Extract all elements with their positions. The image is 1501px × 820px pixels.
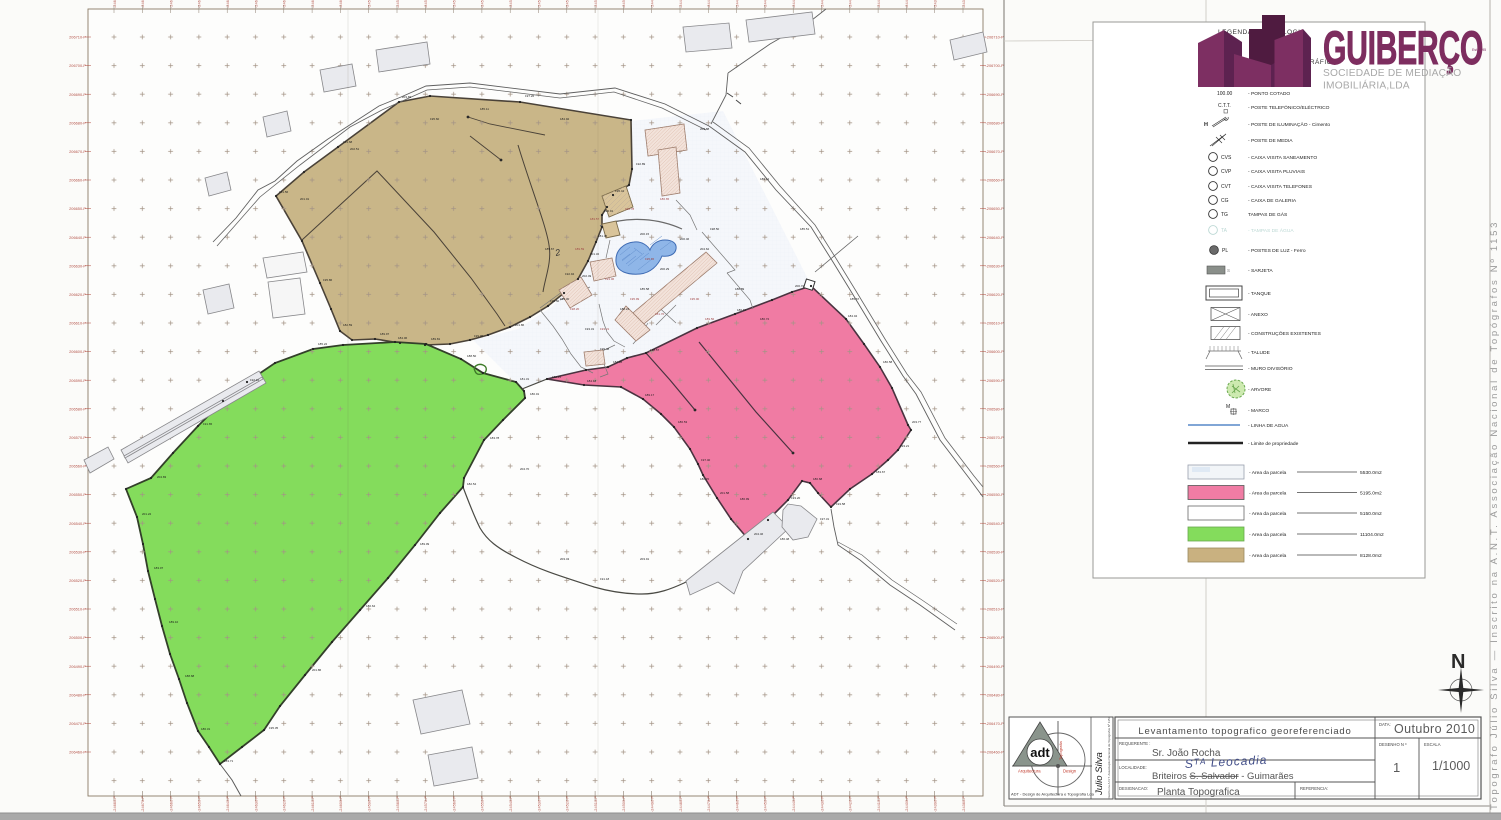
svg-text:-24520-P: -24520-P <box>565 0 570 8</box>
svg-text:- Area da parcela: - Area da parcela <box>1249 553 1287 559</box>
svg-text:-24660-P: -24660-P <box>168 0 173 8</box>
svg-text:Planta Topografica: Planta Topografica <box>1157 787 1240 798</box>
svg-text:LOCALIDADE:: LOCALIDADE: <box>1119 765 1147 770</box>
svg-text:-24400-P: -24400-P <box>904 0 909 8</box>
svg-text:192.94: 192.94 <box>565 272 575 276</box>
svg-text:-24460-P: -24460-P <box>734 0 739 8</box>
svg-text:185.22: 185.22 <box>318 342 328 346</box>
svg-text:186.65: 186.65 <box>660 197 670 201</box>
svg-text:206540-P: 206540-P <box>69 521 86 526</box>
svg-text:204.62: 204.62 <box>700 247 710 251</box>
svg-text:TAMPAS DE GÁS: TAMPAS DE GÁS <box>1248 211 1288 218</box>
svg-text:186.53: 186.53 <box>678 420 688 424</box>
svg-text:193.21: 193.21 <box>900 444 910 448</box>
svg-text:-24580-P: -24580-P <box>395 796 400 812</box>
svg-text:206500-P: 206500-P <box>69 635 86 640</box>
svg-text:-206550-P: -206550-P <box>986 492 1005 497</box>
svg-text:- TALUDE: - TALUDE <box>1248 350 1271 356</box>
svg-text:204.46: 204.46 <box>754 532 764 536</box>
svg-text:-206510-P: -206510-P <box>986 607 1005 612</box>
svg-text:186.62: 186.62 <box>737 308 747 312</box>
svg-text:CVS: CVS <box>1221 155 1232 161</box>
svg-text:- Area da parcela: - Area da parcela <box>1249 491 1287 497</box>
svg-text:186.31: 186.31 <box>201 727 211 731</box>
svg-text:189.97: 189.97 <box>380 332 390 336</box>
svg-text:181.70: 181.70 <box>655 312 665 316</box>
svg-text:5195.0m2: 5195.0m2 <box>1360 491 1382 497</box>
svg-text:197.40: 197.40 <box>701 458 711 462</box>
svg-text:-24500-P: -24500-P <box>621 0 626 8</box>
svg-text:198.20: 198.20 <box>570 307 580 311</box>
svg-text:-206620-P: -206620-P <box>986 292 1005 297</box>
svg-text:-24410-P: -24410-P <box>876 796 881 812</box>
svg-text:REFERENCIA:: REFERENCIA: <box>1300 786 1328 791</box>
svg-text:189.12: 189.12 <box>760 177 770 181</box>
svg-text:-206560-P: -206560-P <box>986 464 1005 469</box>
svg-text:193.58: 193.58 <box>836 502 846 506</box>
svg-text:-24380-P: -24380-P <box>961 796 966 812</box>
svg-text:182.55: 182.55 <box>613 360 623 364</box>
svg-text:188.24: 188.24 <box>620 307 630 311</box>
svg-text:-24630-P: -24630-P <box>253 0 258 8</box>
svg-text:-24500-P: -24500-P <box>621 796 626 812</box>
svg-text:193.20: 193.20 <box>791 496 801 500</box>
svg-text:181.56: 181.56 <box>279 190 289 194</box>
svg-text:ESCALA: ESCALA <box>1424 742 1441 747</box>
svg-text:100.00: 100.00 <box>1217 91 1233 97</box>
svg-text:206550-P: 206550-P <box>69 492 86 497</box>
svg-text:200.46: 200.46 <box>680 237 690 241</box>
svg-text:-24550-P: -24550-P <box>480 0 485 8</box>
svg-text:206460-P: 206460-P <box>69 750 86 755</box>
svg-text:-24610-P: -24610-P <box>310 796 315 812</box>
svg-text:181.35: 181.35 <box>598 234 608 238</box>
svg-text:183.07: 183.07 <box>154 566 164 570</box>
svg-text:C.T.T.: C.T.T. <box>1218 103 1231 109</box>
svg-text:195.86: 195.86 <box>323 278 333 282</box>
svg-text:-24670-P: -24670-P <box>140 0 145 8</box>
svg-text:206480-P: 206480-P <box>69 692 86 697</box>
svg-text:182.54: 182.54 <box>467 482 477 486</box>
svg-text:200.29: 200.29 <box>660 267 670 271</box>
svg-text:-24530-P: -24530-P <box>536 0 541 8</box>
svg-text:-24680-P: -24680-P <box>112 796 117 812</box>
svg-text:-24570-P: -24570-P <box>423 0 428 8</box>
svg-text:195.78: 195.78 <box>625 207 635 211</box>
svg-text:189.81: 189.81 <box>431 337 441 341</box>
svg-text:-24670-P: -24670-P <box>140 796 145 812</box>
svg-text:DESIGNACAO:: DESIGNACAO: <box>1119 786 1148 791</box>
svg-text:- POSTE DE MEDIA: - POSTE DE MEDIA <box>1248 138 1293 144</box>
svg-text:188.89: 188.89 <box>735 287 745 291</box>
svg-text:-206640-P: -206640-P <box>986 235 1005 240</box>
svg-text:193.21: 193.21 <box>600 327 610 331</box>
svg-text:1: 1 <box>1393 760 1400 775</box>
svg-text:- CONSTRUÇÕES EXISTENTES: - CONSTRUÇÕES EXISTENTES <box>1248 330 1322 337</box>
svg-text:-24520-P: -24520-P <box>565 796 570 812</box>
svg-text:183.67: 183.67 <box>876 470 886 474</box>
svg-text:206670-P: 206670-P <box>69 149 86 154</box>
svg-text:- Area da parcela: - Area da parcela <box>1249 532 1287 538</box>
svg-text:Topografia: Topografia <box>1058 741 1063 760</box>
svg-text:201.22: 201.22 <box>142 512 152 516</box>
svg-text:- Area da parcela: - Area da parcela <box>1249 470 1287 476</box>
svg-text:-24580-P: -24580-P <box>395 0 400 8</box>
svg-text:- LINHA DE AGUA: - LINHA DE AGUA <box>1248 423 1289 429</box>
svg-text:-24560-P: -24560-P <box>451 796 456 812</box>
svg-text:206560-P: 206560-P <box>69 464 86 469</box>
svg-text:-206480-P: -206480-P <box>986 692 1005 697</box>
svg-text:- PONTO COTADO: - PONTO COTADO <box>1248 91 1290 97</box>
svg-text:188.50: 188.50 <box>467 354 477 358</box>
svg-text:M: M <box>1226 404 1230 410</box>
svg-text:-24400-P: -24400-P <box>904 796 909 812</box>
svg-text:202.51: 202.51 <box>350 147 360 151</box>
svg-text:-24440-P: -24440-P <box>791 0 796 8</box>
svg-text:- ARVORE: - ARVORE <box>1248 387 1272 393</box>
svg-text:5150.0m2: 5150.0m2 <box>1360 511 1382 517</box>
svg-text:189.56: 189.56 <box>705 317 715 321</box>
svg-text:-24470-P: -24470-P <box>706 796 711 812</box>
svg-text:206570-P: 206570-P <box>69 435 86 440</box>
svg-text:- MURO DIVISÓRIO: - MURO DIVISÓRIO <box>1248 365 1293 372</box>
svg-text:206470-P: 206470-P <box>69 721 86 726</box>
svg-text:206680-P: 206680-P <box>69 120 86 125</box>
svg-text:195.60: 195.60 <box>430 117 440 121</box>
svg-text:206530-P: 206530-P <box>69 549 86 554</box>
svg-text:189.09: 189.09 <box>420 542 430 546</box>
svg-text:- Limite de propriedade: - Limite de propriedade <box>1248 441 1299 447</box>
svg-text:199.30: 199.30 <box>560 297 570 301</box>
svg-text:206690-P: 206690-P <box>69 92 86 97</box>
svg-text:203.91: 203.91 <box>640 557 650 561</box>
svg-text:-24650-P: -24650-P <box>197 796 202 812</box>
svg-text:-24390-P: -24390-P <box>933 0 938 8</box>
svg-text:-206530-P: -206530-P <box>986 549 1005 554</box>
svg-text:189.17: 189.17 <box>645 393 655 397</box>
svg-text:197.31: 197.31 <box>820 517 830 521</box>
svg-text:-24420-P: -24420-P <box>848 796 853 812</box>
svg-text:180.01: 180.01 <box>530 392 540 396</box>
svg-text:TG: TG <box>1221 212 1228 218</box>
svg-text:191.18: 191.18 <box>600 577 610 581</box>
svg-text:- ANEXO: - ANEXO <box>1248 312 1268 318</box>
svg-text:-206710-P: -206710-P <box>986 35 1005 40</box>
svg-text:-24620-P: -24620-P <box>282 0 287 8</box>
svg-text:206520-P: 206520-P <box>69 578 86 583</box>
svg-text:-24540-P: -24540-P <box>508 796 513 812</box>
svg-text:-24510-P: -24510-P <box>593 796 598 812</box>
svg-text:S: S <box>1227 268 1230 273</box>
svg-text:199.95: 199.95 <box>474 334 484 338</box>
svg-text:-206570-P: -206570-P <box>986 435 1005 440</box>
svg-text:191.65: 191.65 <box>203 422 213 426</box>
svg-text:Arquitectura: Arquitectura <box>1018 769 1041 774</box>
svg-text:-206460-P: -206460-P <box>986 750 1005 755</box>
svg-text:180.64: 180.64 <box>366 604 376 608</box>
svg-text:193.06: 193.06 <box>605 277 615 281</box>
svg-text:CG: CG <box>1221 198 1229 204</box>
svg-text:195.99: 195.99 <box>630 297 640 301</box>
svg-text:180.72: 180.72 <box>760 317 770 321</box>
svg-text:180.70: 180.70 <box>700 477 710 481</box>
svg-text:203.43: 203.43 <box>560 557 570 561</box>
svg-text:206490-P: 206490-P <box>69 664 86 669</box>
svg-text:186.99: 186.99 <box>740 497 750 501</box>
svg-text:-206500-P: -206500-P <box>986 635 1005 640</box>
svg-text:184.04: 184.04 <box>848 314 858 318</box>
svg-text:-24550-P: -24550-P <box>480 796 485 812</box>
svg-text:-24410-P: -24410-P <box>876 0 881 8</box>
svg-text:-206650-P: -206650-P <box>986 206 1005 211</box>
svg-text:- SARJETA: - SARJETA <box>1248 268 1273 274</box>
svg-text:8128.0m2: 8128.0m2 <box>1360 553 1382 559</box>
svg-text:-24650-P: -24650-P <box>197 0 202 8</box>
svg-text:-24480-P: -24480-P <box>678 796 683 812</box>
svg-text:193.31: 193.31 <box>585 327 595 331</box>
svg-text:199.50: 199.50 <box>550 299 560 303</box>
svg-text:206580-P: 206580-P <box>69 406 86 411</box>
svg-text:-206630-P: -206630-P <box>986 263 1005 268</box>
svg-text:-24640-P: -24640-P <box>225 0 230 8</box>
svg-text:192.89: 192.89 <box>636 162 646 166</box>
svg-text:- POSTES DE LUZ - Ferro: - POSTES DE LUZ - Ferro <box>1248 248 1306 254</box>
svg-text:CVT: CVT <box>1221 184 1231 190</box>
svg-text:185.51: 185.51 <box>800 227 810 231</box>
svg-text:-24430-P: -24430-P <box>819 796 824 812</box>
svg-text:202.49: 202.49 <box>582 274 592 278</box>
svg-text:206510-P: 206510-P <box>69 607 86 612</box>
svg-text:-24590-P: -24590-P <box>367 0 372 8</box>
svg-text:203.83: 203.83 <box>402 95 412 99</box>
svg-text:-206670-P: -206670-P <box>986 149 1005 154</box>
svg-text:200.72: 200.72 <box>795 284 805 288</box>
svg-text:195.44: 195.44 <box>615 189 625 193</box>
svg-text:196.91: 196.91 <box>604 209 614 213</box>
svg-text:201.58: 201.58 <box>720 491 730 495</box>
svg-text:189.59: 189.59 <box>575 247 585 251</box>
svg-text:PL: PL <box>1222 248 1228 254</box>
svg-text:204.83: 204.83 <box>157 475 167 479</box>
svg-text:- TAMPAS DE ÁGUA: - TAMPAS DE ÁGUA <box>1248 227 1294 234</box>
svg-text:- Area da parcela: - Area da parcela <box>1249 511 1287 517</box>
svg-text:-24450-P: -24450-P <box>763 0 768 8</box>
svg-text:206700-P: 206700-P <box>69 63 86 68</box>
svg-text:-206580-P: -206580-P <box>986 406 1005 411</box>
svg-text:195.35: 195.35 <box>269 726 279 730</box>
svg-text:Inscrito na A.N.T. Associação: Inscrito na A.N.T. Associação Nacional d… <box>1107 716 1111 799</box>
svg-text:SOCIEDADE DE MEDIAÇÃO: SOCIEDADE DE MEDIAÇÃO <box>1323 66 1461 79</box>
svg-text:CVP: CVP <box>1221 169 1232 175</box>
svg-text:200.15: 200.15 <box>640 232 650 236</box>
svg-text:206640-P: 206640-P <box>69 235 86 240</box>
svg-text:203.77: 203.77 <box>912 420 922 424</box>
svg-text:N: N <box>1451 651 1465 673</box>
svg-text:Design: Design <box>1063 769 1077 774</box>
svg-text:184.92: 184.92 <box>560 117 570 121</box>
svg-text:-24460-P: -24460-P <box>734 796 739 812</box>
svg-text:-206680-P: -206680-P <box>986 120 1005 125</box>
svg-text:183.71: 183.71 <box>224 759 234 763</box>
svg-text:DESENHO N º: DESENHO N º <box>1379 742 1407 747</box>
svg-text:DATA:: DATA: <box>1379 722 1391 727</box>
svg-text:206600-P: 206600-P <box>69 349 86 354</box>
svg-text:-24510-P: -24510-P <box>593 0 598 8</box>
svg-text:180.58: 180.58 <box>883 360 893 364</box>
svg-text:188.68: 188.68 <box>185 674 195 678</box>
svg-text:-206690-P: -206690-P <box>986 92 1005 97</box>
svg-text:TA: TA <box>1221 228 1228 234</box>
svg-text:Briteiros S. Salvador - Gu: Briteiros S. Salvador - Guimarães <box>1152 771 1294 782</box>
svg-text:Topografo Júlio Silva — In: Topografo Júlio Silva — Inscrito na A.N.… <box>1489 220 1500 810</box>
svg-text:-206470-P: -206470-P <box>986 721 1005 726</box>
svg-text:-206490-P: -206490-P <box>986 664 1005 669</box>
svg-text:184.18: 184.18 <box>587 379 597 383</box>
svg-text:- CAIXA VISITA TELEFONES: - CAIXA VISITA TELEFONES <box>1248 184 1313 190</box>
svg-text:185.67: 185.67 <box>850 297 860 301</box>
svg-text:199.48: 199.48 <box>600 347 610 351</box>
svg-text:203.88: 203.88 <box>700 127 710 131</box>
svg-text:-24590-P: -24590-P <box>367 796 372 812</box>
svg-text:192.10: 192.10 <box>250 378 260 382</box>
svg-text:195.65: 195.65 <box>645 257 655 261</box>
svg-text:-24490-P: -24490-P <box>650 0 655 8</box>
svg-text:182.15: 182.15 <box>552 375 562 379</box>
svg-text:-24480-P: -24480-P <box>678 0 683 8</box>
svg-text:-206610-P: -206610-P <box>986 321 1005 326</box>
svg-text:- TANQUE: - TANQUE <box>1248 291 1272 297</box>
svg-text:adt: adt <box>1030 745 1050 760</box>
svg-text:GUIBERÇO: GUIBERÇO <box>1323 22 1483 74</box>
svg-text:- CAIXA DE GALERIA: - CAIXA DE GALERIA <box>1248 198 1297 204</box>
svg-text:-206520-P: -206520-P <box>986 578 1005 583</box>
svg-text:-24450-P: -24450-P <box>763 796 768 812</box>
svg-text:-206700-P: -206700-P <box>986 63 1005 68</box>
svg-text:197.26: 197.26 <box>525 94 535 98</box>
svg-text:-24440-P: -24440-P <box>791 796 796 812</box>
svg-text:201.86: 201.86 <box>515 323 525 327</box>
svg-text:188.57: 188.57 <box>650 348 660 352</box>
svg-text:-24570-P: -24570-P <box>423 796 428 812</box>
svg-text:-24470-P: -24470-P <box>706 0 711 8</box>
svg-text:- POSTE TELEFÓNICO/ELÉCTRICO: - POSTE TELEFÓNICO/ELÉCTRICO <box>1248 104 1330 111</box>
svg-text:-206600-P: -206600-P <box>986 349 1005 354</box>
svg-text:1/1000: 1/1000 <box>1432 759 1470 773</box>
svg-text:IMOBILIÁRIA,LDA: IMOBILIÁRIA,LDA <box>1323 79 1410 92</box>
svg-text:-24380-P: -24380-P <box>961 0 966 8</box>
svg-text:201.86: 201.86 <box>312 668 322 672</box>
svg-text:H: H <box>1204 122 1208 128</box>
svg-text:181.31: 181.31 <box>520 377 530 381</box>
svg-text:-24420-P: -24420-P <box>848 0 853 8</box>
svg-text:180.68: 180.68 <box>813 477 823 481</box>
svg-text:-24660-P: -24660-P <box>168 796 173 812</box>
svg-text:Julio Silva: Julio Silva <box>1094 752 1105 796</box>
svg-text:- POSTE DE ILUMINAÇÃO - Ciment: - POSTE DE ILUMINAÇÃO - Cimento <box>1248 121 1330 128</box>
svg-text:189.10: 189.10 <box>169 620 179 624</box>
svg-text:11104.0m2: 11104.0m2 <box>1360 532 1384 538</box>
svg-text:- CAIXA VISITA PLUVIAIS: - CAIXA VISITA PLUVIAIS <box>1248 169 1306 175</box>
svg-text:-24620-P: -24620-P <box>282 796 287 812</box>
svg-text:-24600-P: -24600-P <box>338 796 343 812</box>
svg-text:206710-P: 206710-P <box>69 35 86 40</box>
svg-text:198.50: 198.50 <box>710 227 720 231</box>
svg-text:206630-P: 206630-P <box>69 263 86 268</box>
svg-text:-206590-P: -206590-P <box>986 378 1005 383</box>
svg-text:206590-P: 206590-P <box>69 378 86 383</box>
svg-text:-24640-P: -24640-P <box>225 796 230 812</box>
svg-text:-24390-P: -24390-P <box>933 796 938 812</box>
svg-text:201.01: 201.01 <box>300 197 310 201</box>
svg-text:206610-P: 206610-P <box>69 321 86 326</box>
svg-text:-24610-P: -24610-P <box>310 0 315 8</box>
svg-text:186.48: 186.48 <box>780 537 790 541</box>
svg-text:-24630-P: -24630-P <box>253 796 258 812</box>
svg-text:184.06: 184.06 <box>398 336 408 340</box>
svg-text:185.67: 185.67 <box>545 247 555 251</box>
svg-text:- MARCO: - MARCO <box>1248 408 1269 414</box>
svg-text:-206660-P: -206660-P <box>986 178 1005 183</box>
svg-text:185.11: 185.11 <box>480 107 489 111</box>
svg-text:206620-P: 206620-P <box>69 292 86 297</box>
svg-text:- CAIXA VISITA SANEAMENTO: - CAIXA VISITA SANEAMENTO <box>1248 155 1317 161</box>
svg-text:Outubro 2010: Outubro 2010 <box>1394 722 1475 736</box>
svg-text:Est 1995: Est 1995 <box>1472 48 1486 52</box>
svg-text:206650-P: 206650-P <box>69 206 86 211</box>
svg-text:-24540-P: -24540-P <box>508 0 513 8</box>
svg-text:REQUERENTE :: REQUERENTE : <box>1119 741 1150 746</box>
svg-text:ADT - Design de Arquitectu: ADT - Design de Arquitectura e Topografi… <box>1011 792 1095 797</box>
svg-text:-24560-P: -24560-P <box>451 0 456 8</box>
svg-text:183.78: 183.78 <box>490 436 500 440</box>
svg-text:-24430-P: -24430-P <box>819 0 824 8</box>
svg-text:-24530-P: -24530-P <box>536 796 541 812</box>
svg-text:206660-P: 206660-P <box>69 178 86 183</box>
svg-text:-206540-P: -206540-P <box>986 521 1005 526</box>
svg-text:185.58: 185.58 <box>640 287 650 291</box>
svg-text:-24680-P: -24680-P <box>112 0 117 8</box>
svg-text:195.00: 195.00 <box>690 297 700 301</box>
svg-text:Levantamento topografico geo: Levantamento topografico georeferenciado <box>1138 726 1351 737</box>
svg-text:204.70: 204.70 <box>520 467 530 471</box>
svg-text:5530.0m2: 5530.0m2 <box>1360 470 1382 476</box>
svg-text:-24490-P: -24490-P <box>650 796 655 812</box>
svg-text:-24600-P: -24600-P <box>338 0 343 8</box>
